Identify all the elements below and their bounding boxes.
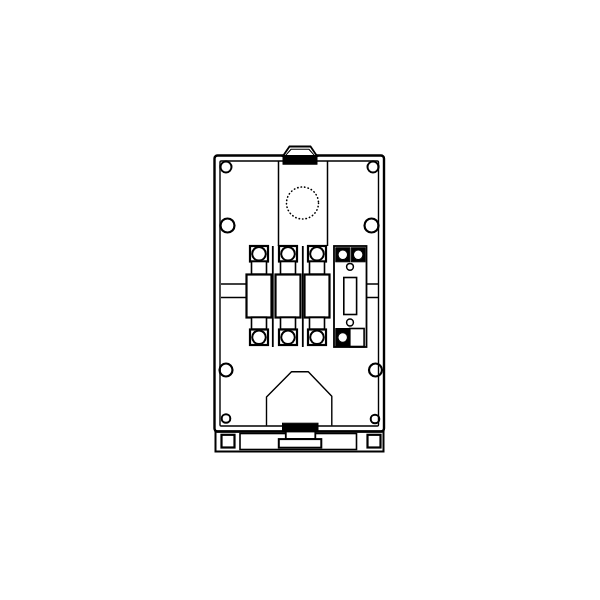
fuse-pole-2 [276, 246, 301, 345]
top-tab-knockout [283, 147, 317, 165]
screw-hole-mid-left [221, 219, 235, 233]
rail-clip-lower [279, 439, 322, 448]
dotted-knockout-circle [287, 187, 319, 219]
module-terminal-bottom-right [350, 329, 364, 347]
screw-hole-mid-right [365, 219, 379, 233]
rail-clip-mid [286, 432, 316, 440]
screw-hole-top-left [221, 162, 232, 173]
module-terminal-screw-bottom [338, 333, 348, 343]
fuse-pole-3 [305, 246, 330, 345]
module-pivot-lower [347, 319, 354, 326]
module-lever-slot [344, 278, 357, 315]
cable-cover-outline [267, 372, 332, 426]
center-channel [279, 161, 328, 246]
module-terminal-screw-left [338, 250, 348, 260]
tab-base-bar [283, 156, 317, 164]
drawing-canvas [0, 0, 600, 600]
module-terminal-screw-right [353, 250, 363, 260]
din-rail-base [216, 423, 384, 451]
screw-hole-bottom-left [220, 364, 233, 377]
rail-clip [279, 423, 322, 448]
tab-trapezoid [283, 147, 317, 157]
screw-hole-top-right [368, 162, 379, 173]
neutral-switch-module [334, 246, 367, 347]
screw-hole-bottom-right [369, 364, 382, 377]
module-pivot-upper [347, 263, 354, 270]
technical-drawing [0, 0, 600, 600]
fuse-bank [247, 246, 330, 345]
rail-clip-bar [283, 423, 319, 431]
base-foot-left [222, 435, 235, 448]
base-foot-right [368, 435, 381, 448]
fuse-pole-1 [247, 246, 272, 345]
small-hole-bottom-left [222, 414, 231, 423]
